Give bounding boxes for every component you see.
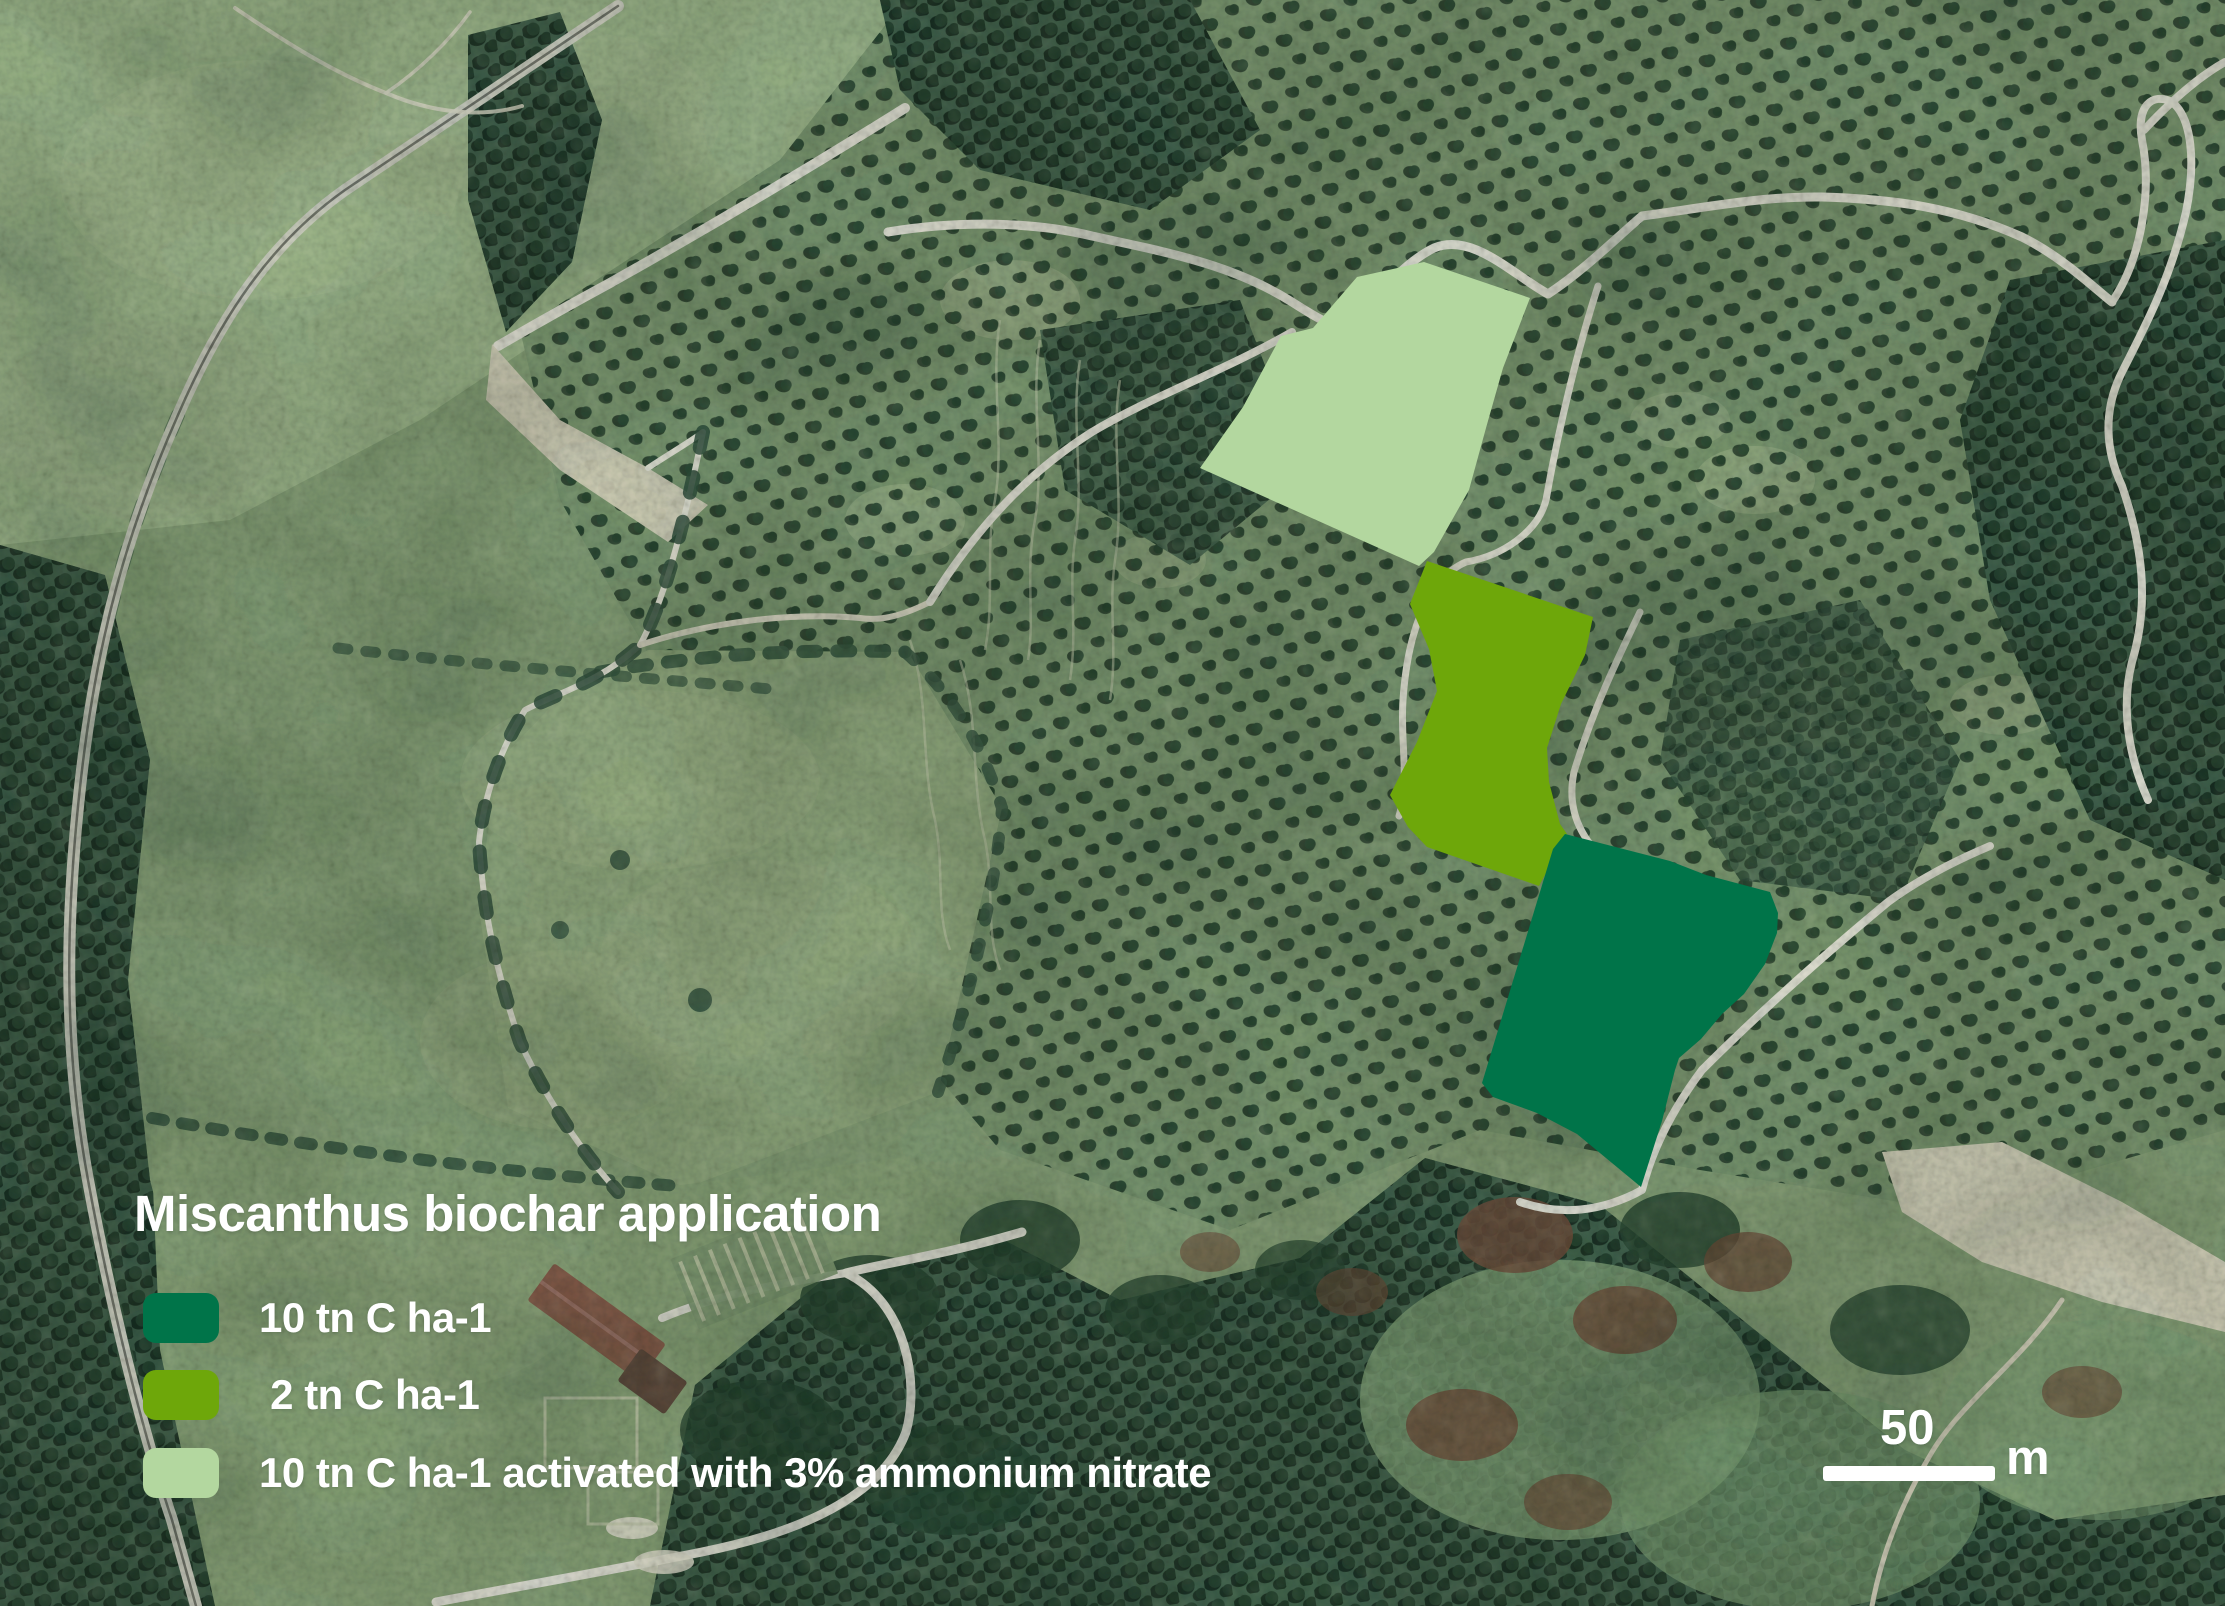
legend-item-10tn: 10 tn C ha-1 (143, 1293, 491, 1343)
scale-bar: 50 m (1820, 1400, 2100, 1510)
legend-item-2tn: 2 tn C ha-1 (143, 1370, 479, 1420)
legend-swatch-10tn-activated (143, 1448, 219, 1498)
legend-swatch-10tn (143, 1293, 219, 1343)
aerial-basemap (0, 0, 2225, 1606)
legend-swatch-2tn (143, 1370, 219, 1420)
map-title: Miscanthus biochar application (134, 1184, 881, 1243)
biochar-map-figure: Miscanthus biochar application 10 tn C h… (0, 0, 2225, 1606)
scale-unit: m (2006, 1430, 2050, 1486)
legend-label-10tn-activated: 10 tn C ha-1 activated with 3% ammonium … (259, 1449, 1211, 1497)
photo-texture (0, 0, 2225, 1606)
legend-label-2tn: 2 tn C ha-1 (259, 1371, 479, 1419)
scale-distance: 50 (1880, 1400, 1935, 1456)
legend-item-10tn-activated: 10 tn C ha-1 activated with 3% ammonium … (143, 1448, 1211, 1498)
scale-bar-line (1823, 1466, 1995, 1481)
legend-label-10tn: 10 tn C ha-1 (259, 1294, 491, 1342)
